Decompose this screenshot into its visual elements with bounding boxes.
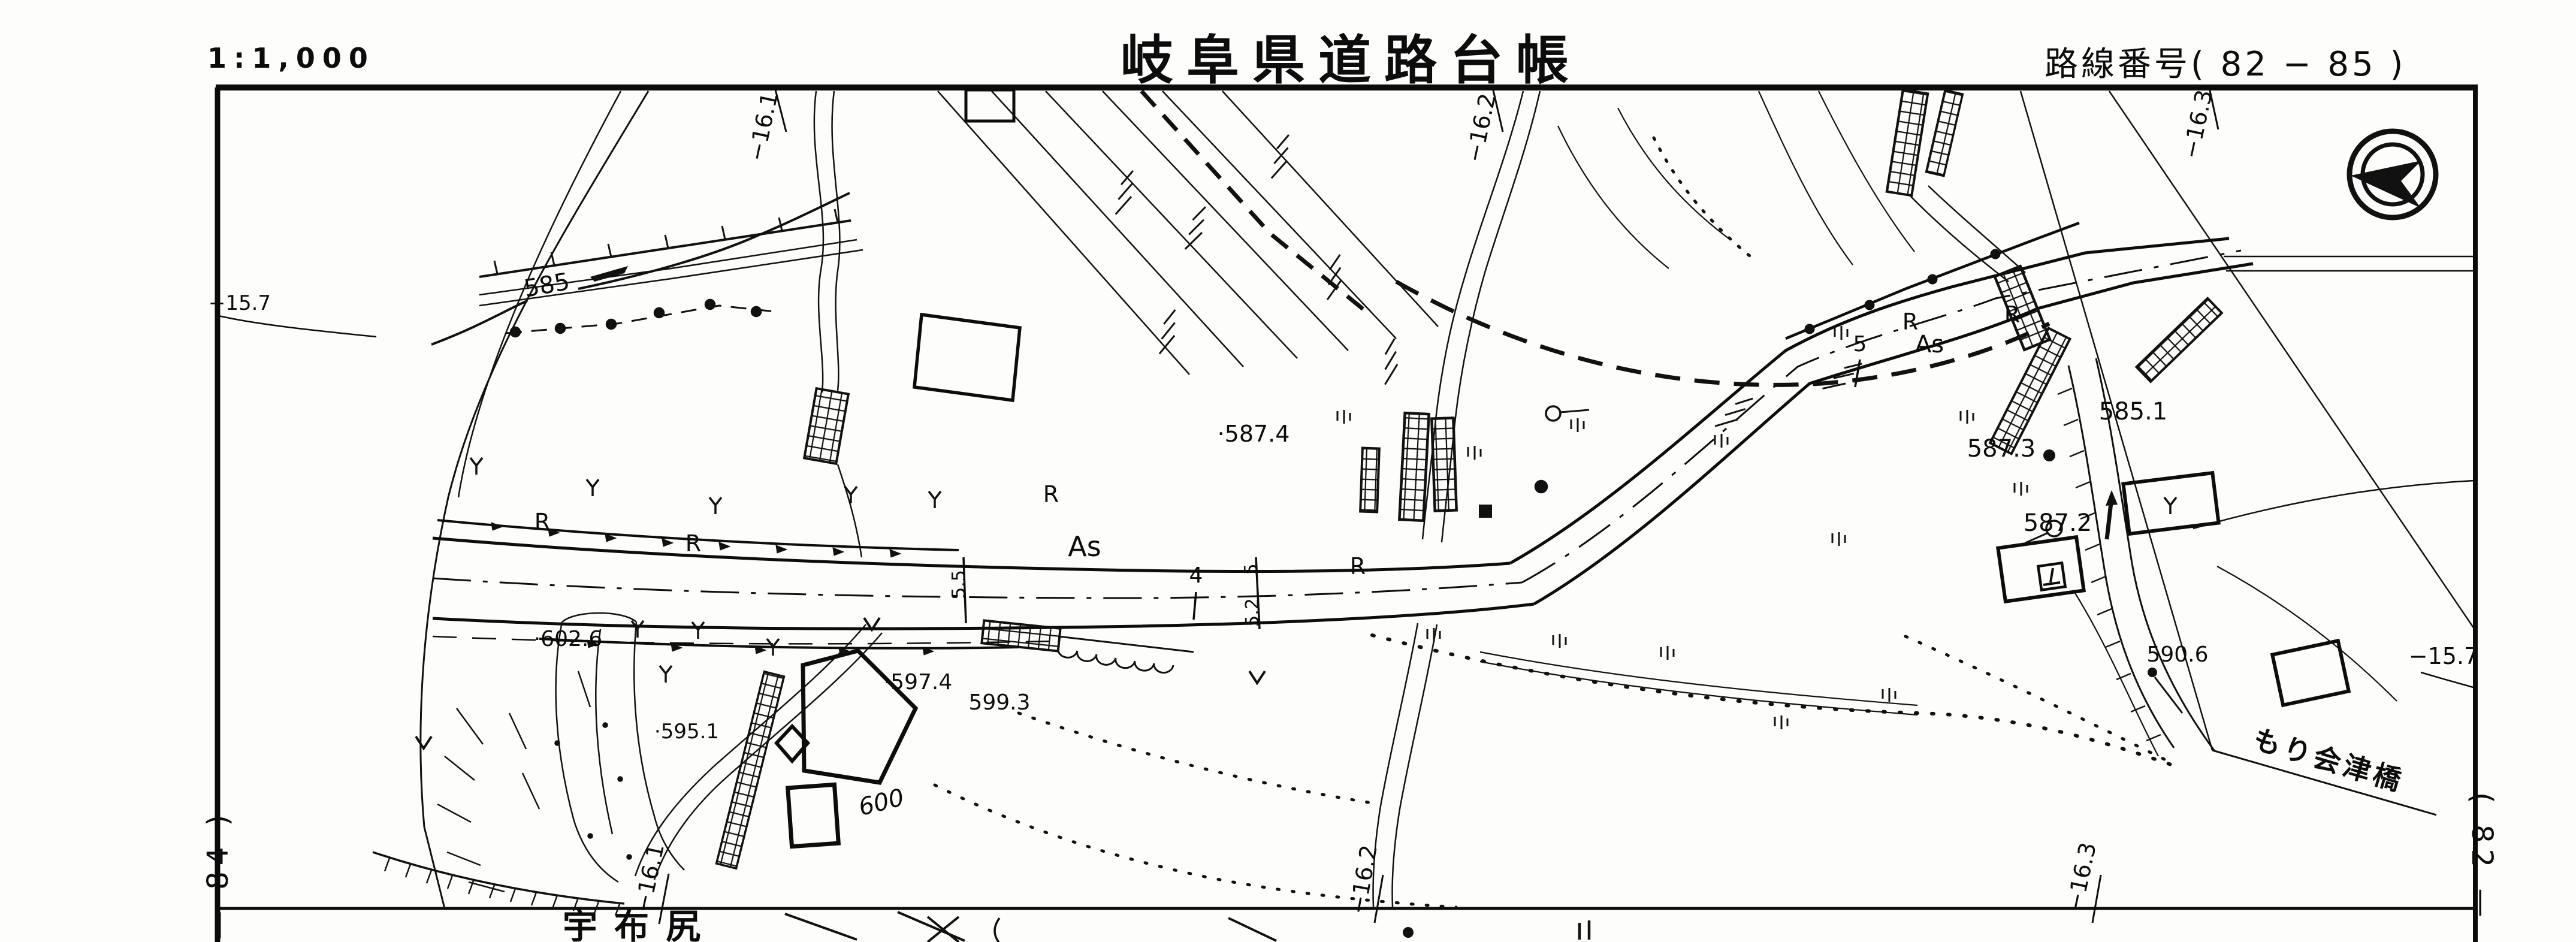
bridge-label: もり会津橋	[2249, 723, 2408, 798]
spot-elevation: 590.6	[2146, 642, 2208, 667]
road-label: R	[534, 509, 550, 535]
spot-elevation: 599.3	[968, 690, 1030, 715]
spot-elevation: 585.1	[2099, 398, 2168, 425]
north-arrow-icon	[2349, 131, 2436, 218]
pavement-label: As	[1068, 530, 1101, 563]
map-labels: −16.1−16.2−16.3−16.1−16.2−16.3−15.7−15.7…	[209, 87, 2478, 942]
road-label: R	[1902, 309, 1918, 335]
adjacent-sheet-left: — 84 )	[201, 809, 235, 940]
grid-label: −16.2	[1344, 843, 1382, 916]
road-label: R	[2004, 301, 2020, 328]
bottom-margin-marks	[785, 912, 1589, 942]
map-frame	[216, 85, 2478, 942]
grid-label: −15.7	[2409, 643, 2478, 669]
contour-label: 600	[856, 784, 907, 822]
route-number: 路線番号( 82 − 85 )	[2045, 37, 2406, 86]
vegetation-symbols	[416, 326, 2176, 748]
retaining-walls	[717, 90, 2222, 868]
spot-elevation: ·595.1	[654, 720, 719, 744]
spot-elevation: 587.2	[2024, 509, 2092, 537]
pavement-label: As	[1915, 331, 1944, 358]
road-label: R	[1043, 481, 1059, 508]
sheet-title: 岐阜県道路台帳	[1067, 18, 1636, 94]
road-label: R	[1350, 553, 1366, 579]
leader-line	[219, 316, 376, 337]
station-label: 5	[1853, 332, 1867, 357]
width-label: 5.2	[1242, 598, 1263, 627]
spot-elevation: ·602.6	[534, 627, 603, 651]
station-label: 4	[1189, 563, 1203, 588]
contour-label: 585	[522, 268, 572, 303]
road-ledger-sheet: −16.1−16.2−16.3−16.1−16.2−16.3−15.7−15.7…	[0, 0, 2576, 942]
spot-elevation: ·597.4	[884, 670, 953, 695]
adjacent-sheet-right: ( 82 —	[2465, 792, 2499, 923]
width-label: 5.5	[949, 570, 970, 599]
width-label: 5	[1241, 563, 1262, 575]
grid-label: −15.7	[209, 291, 271, 315]
contours	[935, 91, 2397, 907]
buildings	[777, 90, 2349, 847]
grid-label: −16.2	[1461, 91, 1501, 165]
grid-label: −16.3	[2178, 87, 2218, 161]
terraced-slopes	[938, 91, 2049, 433]
grid-label: −16.1	[743, 90, 783, 164]
spot-elevation: 587.3	[1967, 435, 2036, 463]
leader-line	[2421, 672, 2475, 688]
road-label: R	[685, 530, 701, 557]
map-canvas: −16.1−16.2−16.3−16.1−16.2−16.3−15.7−15.7…	[0, 0, 2576, 942]
area-label: 宇布尻	[563, 906, 717, 942]
spot-elevation: ·587.4	[1218, 421, 1290, 447]
scale-label: 1:1,000	[207, 42, 375, 74]
